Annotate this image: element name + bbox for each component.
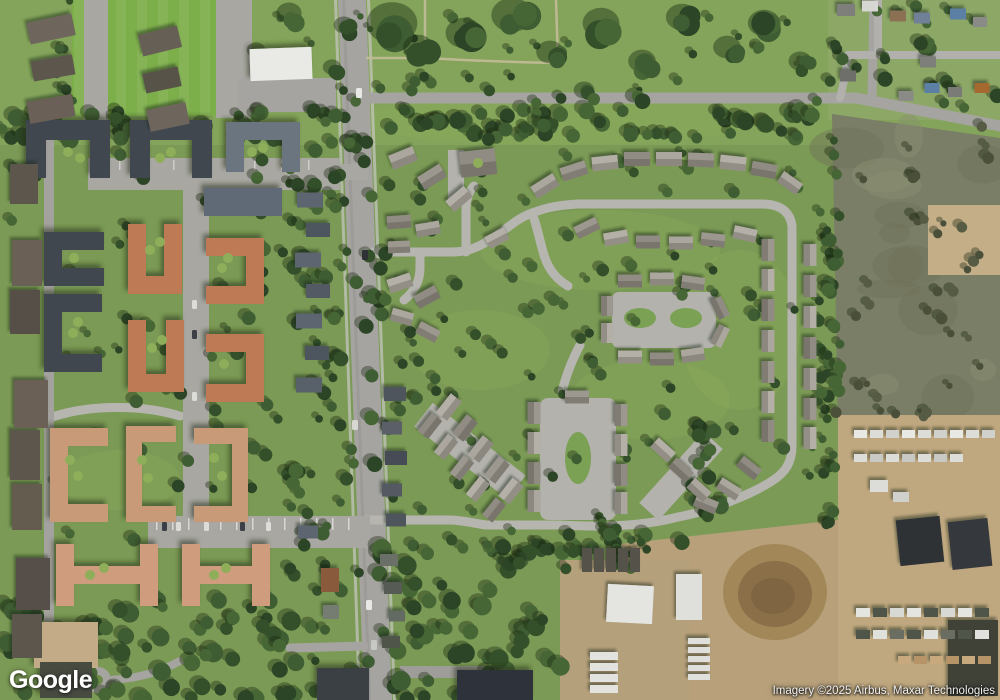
tree [872,392,882,402]
flat-building [34,622,98,668]
courtyard-tree [166,147,176,157]
stall-line [308,160,310,170]
tree [99,621,113,635]
tree [320,117,330,127]
trailer [934,454,947,462]
contractor-yard [560,560,690,700]
tree [473,596,492,615]
scrub-patch [879,223,910,244]
industrial-building [896,516,945,566]
house [382,484,402,497]
industrial-building [948,518,993,570]
tree [498,123,512,137]
tree [959,103,969,113]
tree [594,116,606,128]
tree [705,13,714,22]
parked-car [192,300,197,309]
tree [933,286,943,296]
trailer [958,630,972,639]
tree [440,315,448,323]
tree [965,335,972,342]
tree [408,577,422,591]
tree [563,528,576,541]
courtyard-tree [145,245,155,255]
tree-clump [673,14,690,31]
house [296,314,322,329]
tree [982,142,990,150]
tree [422,594,437,609]
tree [982,152,994,164]
house [382,422,402,435]
tree [360,136,373,149]
tree [379,294,391,306]
tree [853,380,863,390]
tree [359,319,374,334]
tree [411,392,423,404]
tree [259,448,272,461]
trailer [873,630,887,639]
tree [158,602,168,612]
google-logo[interactable]: Google [9,666,92,695]
tree [366,190,378,202]
tree [399,105,410,116]
roof-shade [601,296,607,316]
trailer [941,608,955,617]
tree [409,76,420,87]
roof-shade [762,269,769,291]
tree [777,442,790,455]
tree [863,279,872,288]
tree [350,276,363,289]
tree [417,505,427,515]
tree [623,127,638,142]
tree [642,545,651,554]
house [973,17,987,27]
tree [465,73,474,82]
tree [398,359,408,369]
mow-stripe [158,0,168,116]
tree [526,261,537,272]
tree [247,441,261,455]
tree [776,125,787,136]
tree [142,642,153,653]
tree [933,229,942,238]
tree [384,121,397,134]
house [925,83,940,93]
tree [833,361,846,374]
map-viewport: Google Imagery ©2025 Airbus, Maxar Techn… [0,0,1000,700]
apartment-building [204,188,282,216]
vehicle [362,250,368,260]
excavation-pit [723,544,827,640]
trailer [873,608,887,617]
trailer [582,548,592,572]
tree [827,505,840,518]
trailer [941,630,955,639]
tree [833,249,843,259]
tree [394,404,406,416]
tree [281,611,300,630]
tree [790,306,798,314]
tree [709,266,718,275]
tree [583,276,590,283]
tree [528,373,536,381]
tree [113,131,128,146]
tree [880,54,890,64]
trailer [962,656,975,664]
stall-line [348,518,350,530]
courtyard-tree [65,455,75,465]
tree [816,208,825,217]
tree [363,294,372,303]
house [840,71,856,82]
tree [729,425,739,435]
tree [625,259,637,271]
roof-shade [528,402,535,424]
tree [630,316,640,326]
house [950,9,966,20]
trailer [898,656,911,664]
tree [670,252,679,261]
stall-line [252,518,254,530]
tree [364,410,379,425]
tree [691,133,702,144]
roof-shade [650,359,674,366]
house [384,387,406,401]
tree [113,644,131,662]
roof-shade [636,242,660,249]
tree [567,545,580,558]
tree [288,463,303,478]
tree [207,352,217,362]
tree [328,171,342,185]
roof-shade [615,464,622,486]
tree [273,639,286,652]
house [295,253,321,268]
tree [975,251,984,260]
roof-shade [669,243,693,250]
trailer [982,430,995,438]
tree [307,40,314,47]
roof-shade [762,420,769,442]
tree [224,326,231,333]
tree [409,339,417,347]
courtyard-tree [221,563,231,573]
tree [815,372,827,384]
tree [287,654,304,671]
tree [669,130,682,143]
roof-shade [615,404,622,426]
tree [836,53,848,65]
west-edge-street [44,128,54,628]
trailer [890,630,904,639]
courtyard-tree [217,263,227,273]
tree [115,346,122,353]
tree [702,470,716,484]
tree [815,296,824,305]
tree-clump [549,52,565,68]
trailer [688,647,710,653]
tree [327,401,337,411]
house [323,605,339,619]
tree [537,614,548,625]
courtyard-tree [147,343,157,353]
tree [514,633,530,649]
equipment [893,492,909,502]
house [914,13,930,24]
courtyard-tree [223,253,233,263]
tree [443,592,461,610]
tree [463,624,479,640]
tree [689,50,698,59]
rowhouse [16,558,50,610]
trailer [907,608,921,617]
tree [482,219,489,226]
tree [964,266,972,274]
trailer [958,608,972,617]
tree [199,649,211,661]
tree [575,333,586,344]
house [382,636,400,648]
tree [506,47,513,54]
tree [319,270,333,284]
roof-shade [618,281,642,288]
house [297,193,323,208]
parked-car [176,522,181,531]
roof-shade [615,492,622,514]
tree [328,312,341,325]
tree [404,326,416,338]
trailer [978,656,991,664]
tree [587,358,598,369]
tree [947,330,955,338]
tree-clump [588,93,600,105]
trailer [630,548,640,572]
tree [354,568,364,578]
tree [358,155,371,168]
tree [467,436,476,445]
trailer [924,630,938,639]
tree [272,662,288,678]
tree [312,586,322,596]
house [890,11,906,22]
house [920,57,936,68]
commercial-building [317,668,369,700]
stall-line [188,518,190,530]
tree [211,592,227,608]
tree [834,211,844,221]
tree [307,470,316,479]
tree [311,657,319,665]
tree [560,563,571,574]
tree [333,352,348,367]
tree [908,172,919,183]
tree [8,109,25,126]
tree [383,179,395,191]
tree [483,540,492,549]
tree-clump [635,93,651,109]
tree [447,647,465,665]
courtyard-tree [155,153,165,163]
tree [286,477,299,490]
tree [531,539,539,547]
tree [499,248,511,260]
tree [256,154,269,167]
tree [662,187,672,197]
tree [407,600,422,615]
tree-clump [465,27,486,48]
tree [513,557,526,570]
tree [707,424,722,439]
tree [298,539,310,551]
trailer [924,608,938,617]
tree [484,85,495,96]
roof-shade [804,337,811,359]
tree [595,369,607,381]
tree [482,133,495,146]
tree [825,76,836,87]
courtyard-tree [157,335,167,345]
rowhouse [12,614,42,658]
rowhouse [12,240,42,286]
tree [419,72,429,82]
tree [284,563,296,575]
courtyard-tree [63,147,73,157]
tree [115,240,124,249]
tree [666,383,676,393]
rowhouse [10,430,40,480]
tree [758,116,774,132]
tree [676,289,687,300]
tree [753,42,764,53]
rowhouse [14,380,48,428]
tree [823,414,832,423]
tree [336,498,345,507]
commercial-building [457,670,533,700]
mow-stripe [179,0,189,116]
courtyard-tree [217,471,227,481]
tree [315,415,323,423]
tree [692,457,704,469]
tree-clump [513,2,537,26]
tree [792,131,802,141]
tree [830,462,840,472]
mow-stripe [200,0,210,116]
tree [919,215,928,224]
vehicle [356,88,362,98]
tree [209,485,217,493]
roof-shade [615,434,622,456]
tree [876,407,884,415]
tree [651,128,663,140]
mow-stripe [137,0,147,116]
house [862,1,878,12]
tree [421,117,434,130]
tree [939,98,949,108]
tree [65,529,75,539]
tree [551,657,569,675]
tree [320,625,330,635]
tree [578,103,594,119]
tree [566,129,580,143]
trailer [688,638,710,644]
house [948,87,962,97]
trailer [950,430,963,438]
tree [313,339,321,347]
tree-clump [728,47,744,63]
satellite-imagery [0,0,1000,700]
trailer [688,665,710,671]
rowhouse [10,290,40,334]
courtyard-tree [99,563,109,573]
tree [346,444,357,455]
trailer [975,608,989,617]
tree [114,149,126,161]
trailer [590,663,618,671]
trailer [918,454,931,462]
tree [421,547,434,560]
tree [828,150,839,161]
tree [835,340,844,349]
tree [326,136,338,148]
parked-car [266,522,271,531]
roof-shade [650,279,674,286]
roof-shade [624,159,650,166]
tree [397,556,416,575]
trailer [594,548,604,572]
parked-car [162,522,167,531]
tree [585,329,594,338]
roof-shade [528,490,535,512]
tree [287,502,296,511]
courtyard-tree [219,359,229,369]
tree [547,471,558,482]
tree [936,313,948,325]
house [296,378,322,393]
house [386,514,406,527]
tree-clump [343,19,358,34]
trailer [854,430,867,438]
courtyard-tree [85,570,95,580]
trailer [590,685,618,693]
tree [783,19,790,26]
tree [507,527,516,536]
trailer [975,630,989,639]
tree [816,387,828,399]
trailer [914,656,927,664]
trailer [918,430,931,438]
roof-shade [762,299,769,321]
tree [923,306,932,315]
map-canvas[interactable] [0,0,1000,700]
trailer [606,548,616,572]
trailer [886,454,899,462]
rowhouse [12,484,42,530]
tree [737,113,755,131]
equipment [870,480,888,492]
courtyard-tree [258,143,268,153]
tree [948,286,959,297]
tree [559,300,568,309]
tree [172,480,185,493]
roof-shade [618,357,642,364]
tree [571,454,581,464]
rowhouse [10,164,38,204]
house [385,451,407,465]
tree [946,383,952,389]
tree [497,348,508,359]
tree [83,330,91,338]
